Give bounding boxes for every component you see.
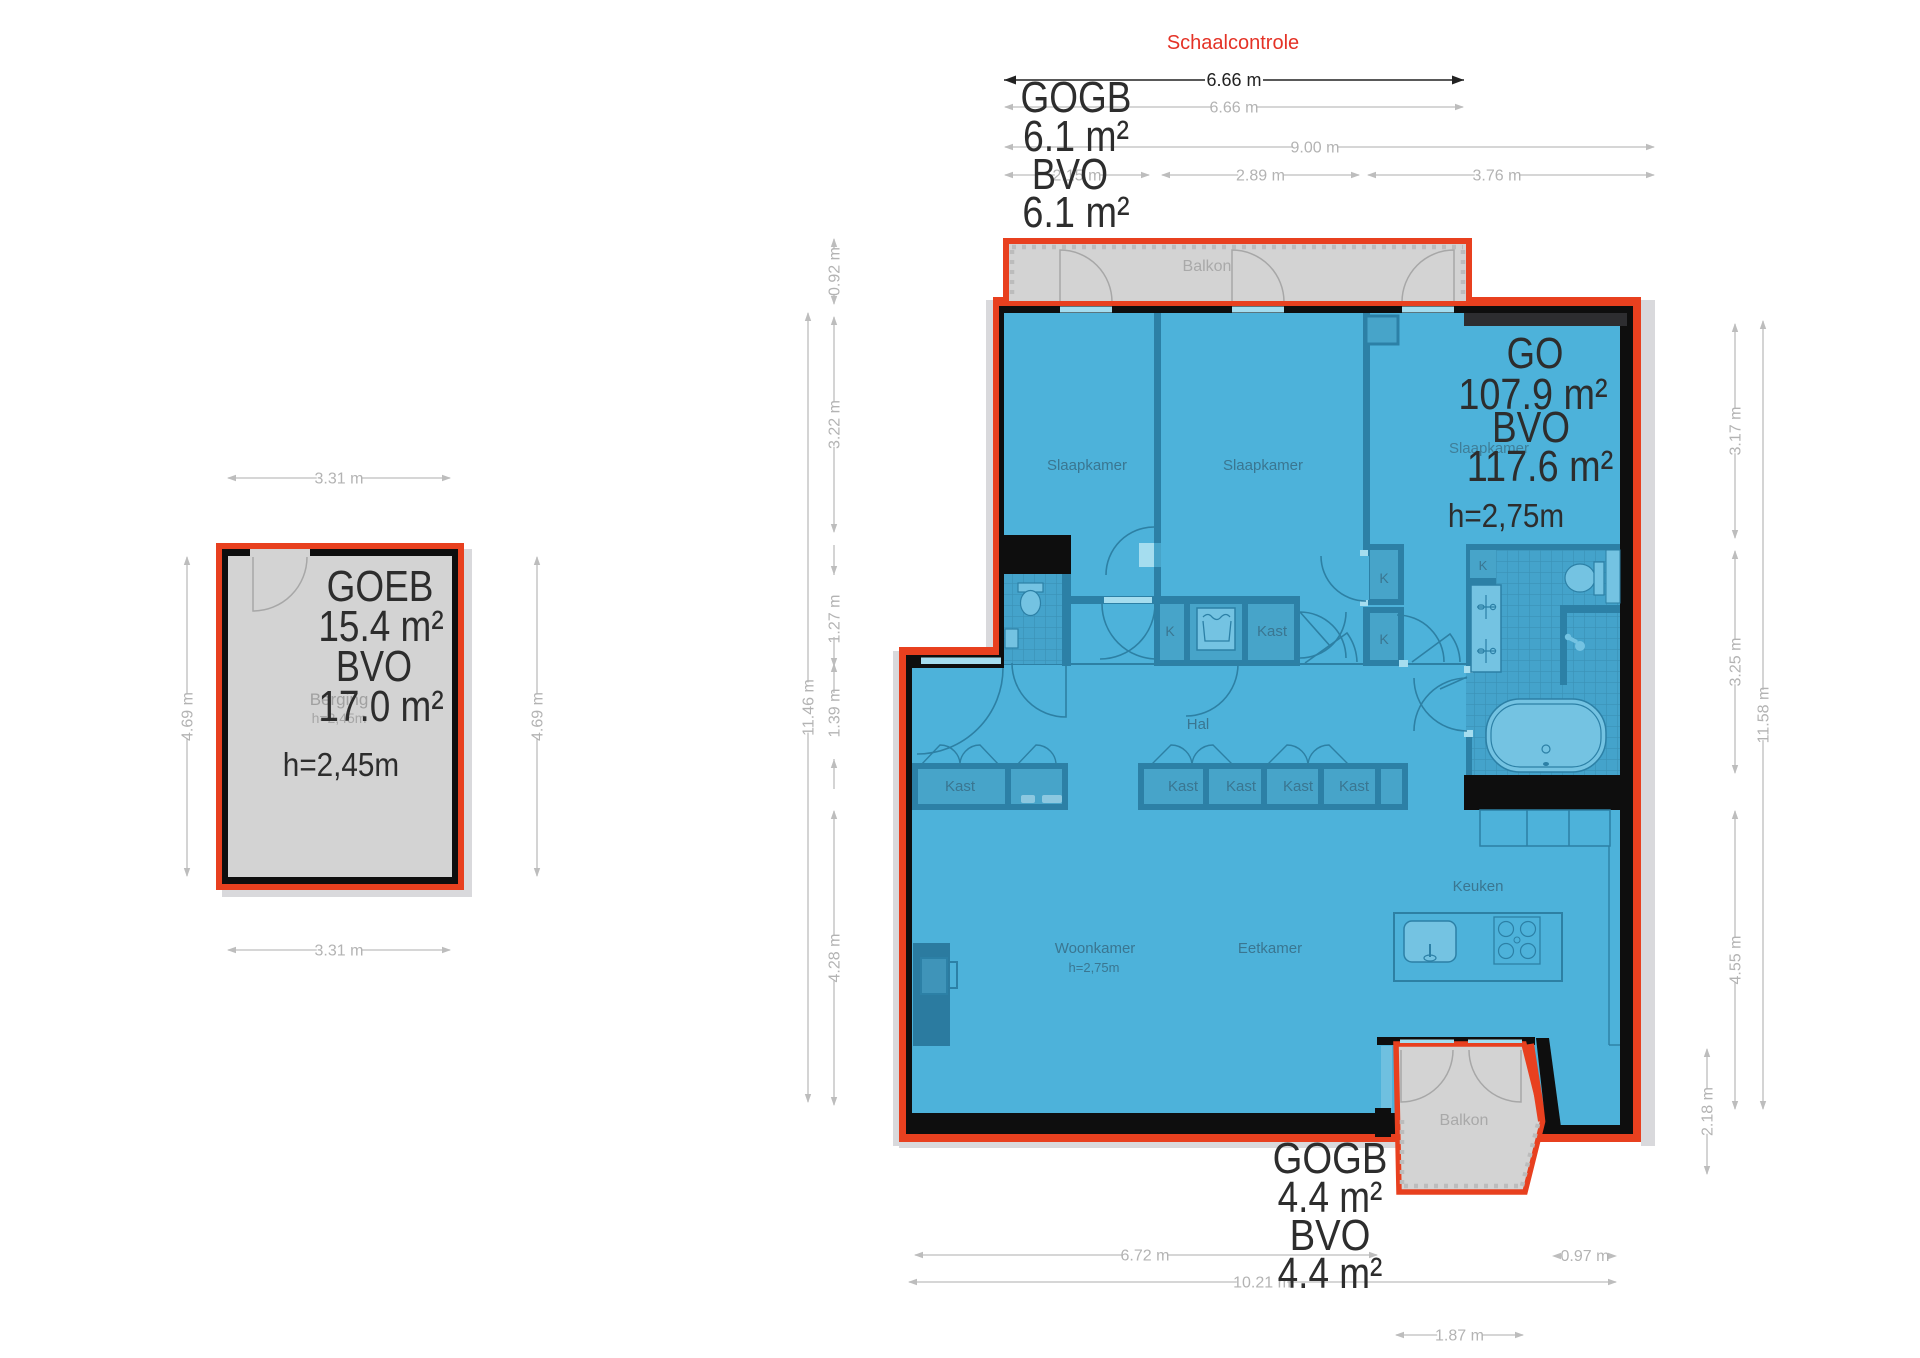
svg-text:Slaapkamer: Slaapkamer [1047, 457, 1127, 474]
svg-text:4.28 m: 4.28 m [826, 934, 843, 983]
svg-text:3.17 m: 3.17 m [1727, 407, 1744, 456]
svg-text:h=2,75m: h=2,75m [1448, 498, 1564, 535]
svg-text:K: K [1479, 558, 1488, 573]
svg-text:3.76 m: 3.76 m [1473, 167, 1522, 184]
svg-text:Woonkamer: Woonkamer [1055, 940, 1136, 957]
svg-text:6.66 m: 6.66 m [1210, 99, 1259, 116]
svg-text:6.1 m²: 6.1 m² [1022, 187, 1129, 236]
svg-text:3.31 m: 3.31 m [315, 942, 364, 959]
svg-text:K: K [1379, 631, 1389, 647]
svg-text:Slaapkamer: Slaapkamer [1223, 457, 1303, 474]
svg-text:Kast: Kast [1283, 778, 1314, 795]
svg-text:Eetkamer: Eetkamer [1238, 940, 1302, 957]
svg-text:Balkon: Balkon [1183, 258, 1232, 275]
svg-text:1.87 m: 1.87 m [1435, 1327, 1484, 1344]
svg-text:117.6 m²: 117.6 m² [1467, 441, 1613, 490]
svg-text:Kast: Kast [945, 778, 976, 795]
svg-text:Kast: Kast [1257, 623, 1288, 640]
svg-text:6.66 m: 6.66 m [1206, 70, 1261, 90]
svg-text:Balkon: Balkon [1440, 1112, 1489, 1129]
svg-text:K: K [1165, 623, 1175, 639]
svg-text:h=2,45m: h=2,45m [283, 747, 399, 784]
svg-text:h=2,75m: h=2,75m [1069, 960, 1120, 975]
svg-text:Hal: Hal [1187, 716, 1210, 733]
svg-text:1.27 m: 1.27 m [826, 595, 843, 644]
svg-text:Kast: Kast [1226, 778, 1257, 795]
svg-text:Kast: Kast [1339, 778, 1370, 795]
svg-text:17.0 m²: 17.0 m² [318, 681, 443, 731]
svg-text:4.4 m²: 4.4 m² [1278, 1248, 1383, 1298]
svg-text:1.39 m: 1.39 m [826, 689, 843, 738]
svg-text:0.92 m: 0.92 m [826, 247, 843, 296]
svg-text:3.25 m: 3.25 m [1727, 638, 1744, 687]
svg-text:Kast: Kast [1168, 778, 1199, 795]
svg-text:K: K [1379, 570, 1389, 586]
svg-text:3.31 m: 3.31 m [315, 470, 364, 487]
svg-text:6.72 m: 6.72 m [1121, 1247, 1170, 1264]
svg-text:4.69 m: 4.69 m [179, 692, 196, 741]
svg-text:Schaalcontrole: Schaalcontrole [1167, 32, 1299, 54]
svg-text:2.18 m: 2.18 m [1699, 1087, 1716, 1136]
svg-text:11.46 m: 11.46 m [800, 679, 817, 736]
svg-text:4.69 m: 4.69 m [529, 692, 546, 741]
svg-text:0.97 m: 0.97 m [1561, 1248, 1610, 1265]
svg-text:2.89 m: 2.89 m [1236, 167, 1285, 184]
svg-text:3.22 m: 3.22 m [826, 400, 843, 449]
svg-text:11.58 m: 11.58 m [1755, 687, 1772, 744]
svg-text:9.00 m: 9.00 m [1291, 139, 1340, 156]
svg-text:4.55 m: 4.55 m [1727, 936, 1744, 985]
svg-text:Keuken: Keuken [1453, 878, 1504, 895]
